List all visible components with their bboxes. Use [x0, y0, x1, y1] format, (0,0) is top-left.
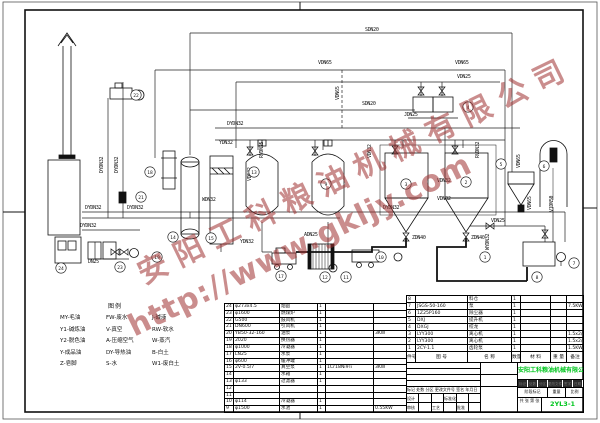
table-cell: 5	[407, 316, 416, 323]
pipe-label-ADN25: ADN25	[304, 232, 318, 238]
table-cell: 1	[512, 302, 521, 309]
table-cell	[374, 317, 407, 324]
table-cell: JSGS-50-160	[416, 302, 468, 309]
table-cell: 1	[318, 303, 326, 310]
table-cell: 17	[225, 351, 234, 358]
equipment-tag: 9	[325, 182, 328, 188]
equipment-tag: 13	[251, 170, 257, 176]
legend-column: FW-废水V-真空A-压缩空气DY-导热油S-水	[106, 313, 152, 371]
table-cell: 1.5x2/4KW	[567, 337, 584, 344]
pipe-label-RVDN32: RVDN32	[475, 141, 481, 158]
valves	[111, 87, 548, 255]
table-cell: DN600	[234, 323, 280, 330]
pipe-label-VDN32: VDN32	[367, 144, 373, 158]
table-cell	[551, 337, 567, 344]
table-cell: 11	[225, 392, 234, 399]
table-cell	[551, 302, 567, 309]
table-cell: G500	[234, 317, 280, 324]
table-cell	[551, 316, 567, 323]
table-cell: 1	[318, 398, 326, 405]
table-cell	[374, 310, 407, 317]
table-row: 192020换热器1	[225, 337, 407, 344]
table-cell	[280, 385, 318, 392]
table-cell: 齿轮泵	[468, 344, 512, 351]
equipment-tag: 12	[322, 275, 328, 281]
table-cell	[374, 371, 407, 378]
pipe-label-VDN65: VDN65	[516, 154, 522, 168]
pipe-label-ZDN40: ZDN40	[412, 235, 426, 241]
table-cell	[318, 392, 326, 399]
legend-item: W-蒸汽	[152, 336, 198, 348]
table-cell: 1	[318, 358, 326, 365]
table-cell: 1	[318, 323, 326, 330]
table-cell	[374, 358, 407, 365]
equipment-tag: 4	[467, 105, 470, 111]
pipe-label-DYDN32: DYDN32	[227, 121, 244, 127]
table-cell: φ114	[234, 398, 280, 405]
table-cell: 图 号	[416, 351, 468, 362]
table-cell: 1	[318, 378, 326, 385]
table-cell	[551, 344, 567, 351]
table-cell	[521, 330, 551, 337]
table-cell: 2	[407, 337, 416, 344]
table-cell: 3KW	[374, 364, 407, 371]
table-cell: 引风机	[280, 323, 318, 330]
table-row: 22G500鼓风机1	[225, 317, 407, 324]
table-cell	[374, 344, 407, 351]
table-cell: 1	[318, 337, 326, 344]
legend-item: DY-导热油	[106, 348, 152, 360]
table-cell: 1	[512, 316, 521, 323]
bom-table-left: 24φ273x4.5烟囱123φ1600燃煤炉122G500鼓风机121DN60…	[224, 303, 407, 413]
table-cell: φ1000	[234, 344, 280, 351]
revision-cell: 更改文件号	[548, 380, 563, 388]
legend-item: Y1-碱炼油	[60, 325, 106, 337]
pipe-label-WYDN32: WYDN32	[485, 233, 491, 250]
table-cell: 件号	[407, 351, 416, 362]
table-row: 2LYY300离心机11.5x2/4KW	[407, 337, 584, 344]
legend-item: S-水	[106, 359, 152, 371]
pipe-label-VDN25: VDN25	[491, 218, 505, 224]
blower	[110, 88, 132, 99]
legend-column: MY-毛油Y1-碱炼油Y2-脱色油Y-成品油Z-皂脚	[60, 313, 106, 371]
table-cell: 1	[512, 344, 521, 351]
table-cell	[326, 405, 374, 412]
table-row: 18φ1000冷凝器1	[225, 344, 407, 351]
table-cell: 冷凝器	[280, 398, 318, 405]
table-cell: 23	[225, 310, 234, 317]
table-cell	[567, 295, 584, 302]
table-cell	[234, 385, 280, 392]
table-cell: 1.5x2/4KW	[567, 330, 584, 337]
table-cell	[326, 371, 374, 378]
title-block: 标记 处数 分区 更改文件号 签名 年月日 设计 标准化 审核 工艺 批准 工艺…	[406, 362, 583, 412]
equipment-tag: 15	[208, 236, 214, 242]
table-cell: YB50-32-160	[234, 330, 280, 337]
revision-dark-row: 标记处数分区更改文件号签字日期	[518, 380, 583, 388]
pipe-label-VDN32: VDN32	[437, 196, 451, 202]
table-cell: 材 料	[521, 351, 551, 362]
table-cell	[551, 330, 567, 337]
table-cell: 备注	[567, 351, 584, 362]
table-cell	[326, 337, 374, 344]
table-cell	[374, 323, 407, 330]
pipe-label-ZDN40: ZDN40	[471, 235, 485, 241]
equipment-tag: 6	[543, 164, 546, 170]
sign-row-1: 设计 标准化	[407, 394, 481, 403]
table-cell	[318, 385, 326, 392]
pipe-label-VDN65: VDN65	[527, 196, 533, 210]
table-cell: 1	[407, 344, 416, 351]
legend-item: RW-软水	[152, 325, 198, 337]
sign-cell: 批准	[457, 403, 469, 413]
table-cell: 水泵	[280, 351, 318, 358]
pipe-label-VDN65: VDN65	[318, 60, 332, 66]
table-cell: 9	[225, 405, 234, 412]
table-cell	[416, 295, 468, 302]
table-row: 8料仓1	[407, 295, 584, 302]
table-cell: 1.5KW	[567, 344, 584, 351]
table-cell: 1	[512, 309, 521, 316]
table-cell: 16	[225, 358, 234, 365]
legend-item: W1-废白土	[152, 359, 198, 371]
table-cell: 离心机	[468, 337, 512, 344]
table-row: 12CY-1.1齿轮泵11.5KW	[407, 344, 584, 351]
drawing-title: 工艺流程图	[481, 387, 518, 413]
drawing-sheet: SDN20VDN65VDN65VDN25VDN65SDN20JDN25DYDN3…	[0, 0, 600, 423]
table-cell: 冷凝器	[280, 344, 318, 351]
table-cell: 1Z25P160	[416, 309, 468, 316]
table-cell: 绞龙	[468, 323, 512, 330]
table-cell	[374, 337, 407, 344]
pipe-label-VDN32: VDN32	[437, 178, 451, 184]
table-row: 16φ600缓冲罐1	[225, 358, 407, 365]
furnace	[48, 160, 80, 235]
table-cell	[521, 302, 551, 309]
table-cell: 2020	[234, 337, 280, 344]
table-row: 13φ133过滤器1	[225, 378, 407, 385]
table-cell: 3KW	[374, 330, 407, 337]
table-row: 21DN600引风机1	[225, 323, 407, 330]
legend-item: V-真空	[106, 325, 152, 337]
revision-cell: 处数	[528, 380, 538, 388]
table-cell: φ273x4.5	[234, 303, 280, 310]
table-row: 61Z25P160除尘器1	[407, 309, 584, 316]
table-cell	[551, 309, 567, 316]
pipe-label-DYDN32: DYDN32	[80, 223, 97, 229]
cone-tank	[445, 153, 488, 198]
pipe-label-DYDN32: DYDN32	[127, 205, 144, 211]
table-row: 3LYY300离心机11.5x2/4KW	[407, 330, 584, 337]
table-cell: 1	[512, 323, 521, 330]
equipment-tag: 19	[154, 255, 160, 261]
pump	[394, 253, 402, 261]
pipe-label-DYDN32: DYDN32	[99, 156, 105, 173]
sign-cell: 工艺	[432, 403, 444, 413]
equipment-tag: 18	[147, 170, 153, 176]
table-cell: 提升机	[468, 316, 512, 323]
company-name: 安阳工科粮油机械有限公司	[518, 363, 584, 380]
sheet-note: 共 张 第 张	[518, 397, 542, 413]
table-row: 10φ114冷凝器1	[225, 398, 407, 405]
table-cell: 15	[225, 364, 234, 371]
bom-table-right: 8料仓17JSGS-50-160泵17.5KW61Z25P160除尘器15DXJ…	[406, 295, 584, 352]
equipment-tag: 22	[133, 93, 139, 99]
table-cell: 真空泵	[280, 364, 318, 371]
table-cell	[280, 392, 318, 399]
table-cell	[521, 316, 551, 323]
table-cell: 13	[225, 378, 234, 385]
table-cell: 3	[407, 330, 416, 337]
sign-cell: 审核	[407, 403, 419, 413]
equipment-tag: 8	[536, 275, 539, 281]
table-cell	[234, 371, 280, 378]
table-cell	[521, 337, 551, 344]
table-cell: 0.55KW	[374, 405, 407, 412]
equipment-tag: 3	[405, 182, 408, 188]
legend-columns: MY-毛油Y1-碱炼油Y2-脱色油Y-成品油Z-皂脚FW-废水V-真空A-压缩空…	[60, 313, 220, 371]
table-cell	[326, 398, 374, 405]
legend-item: J-碱液	[152, 313, 198, 325]
legend-title: 图例	[108, 301, 220, 310]
cone-tank	[385, 153, 428, 198]
revision-cell: 日期	[573, 380, 583, 388]
table-cell: 料仓	[468, 295, 512, 302]
table-cell	[326, 323, 374, 330]
table-cell	[326, 385, 374, 392]
table-row: 7JSGS-50-160泵17.5KW	[407, 302, 584, 309]
table-cell: 烟囱	[280, 303, 318, 310]
piping	[82, 33, 565, 266]
table-cell: 14	[225, 371, 234, 378]
table-cell	[567, 323, 584, 330]
table-cell: DXJ	[416, 316, 468, 323]
table-cell: 1	[512, 295, 521, 302]
vacuum-pump	[413, 97, 433, 112]
pipe-label-VDN65: VDN65	[335, 86, 341, 100]
pump	[130, 249, 139, 258]
table-cell	[374, 303, 407, 310]
table-cell	[326, 358, 374, 365]
table-row: 11	[225, 392, 407, 399]
table-cell: 离心机	[468, 330, 512, 337]
legend-item: B-白土	[152, 348, 198, 360]
table-row: 17LN25水泵1	[225, 351, 407, 358]
table-cell: 1	[318, 317, 326, 324]
table-cell: 1	[318, 405, 326, 412]
table-cell: 1	[318, 351, 326, 358]
table-cell: 过滤器	[280, 378, 318, 385]
table-cell: 2V-0.5/7	[234, 364, 280, 371]
table-cell: 7	[407, 302, 416, 309]
table-row: 23φ1600燃煤炉1	[225, 310, 407, 317]
table-row: 14水箱1	[225, 371, 407, 378]
table-cell	[521, 323, 551, 330]
pipe-label-DYDN32: DYDN32	[114, 156, 120, 173]
table-cell: 8	[407, 295, 416, 302]
table-cell: 换热器	[280, 337, 318, 344]
equipment-tag: 10	[378, 255, 384, 261]
table-cell	[326, 344, 374, 351]
pipe-label-WDN32: WDN32	[202, 197, 216, 203]
equipment-tag: 2	[465, 180, 468, 186]
sign-cell: 标准化	[444, 394, 457, 403]
table-cell	[374, 398, 407, 405]
table-cell	[374, 385, 407, 392]
table-cell: 重 量	[551, 351, 567, 362]
table-cell	[234, 392, 280, 399]
table-cell: 燃煤炉	[280, 310, 318, 317]
pipe-label-RVDN25: RVDN25	[259, 141, 265, 158]
table-cell: 18	[225, 344, 234, 351]
pipe-label-VDN65: VDN65	[455, 60, 469, 66]
table-cell	[521, 309, 551, 316]
table-cell	[521, 344, 551, 351]
sign-cell: 设计	[407, 394, 419, 403]
table-cell	[326, 392, 374, 399]
table-cell: 数量	[512, 351, 521, 362]
table-cell: 21	[225, 323, 234, 330]
table-cell	[567, 316, 584, 323]
equipment-tag: 1	[484, 255, 487, 261]
table-row: 5DXJ提升机1	[407, 316, 584, 323]
table-cell: 6	[407, 309, 416, 316]
column-small	[163, 151, 175, 189]
table-cell: 缓冲罐	[280, 358, 318, 365]
table-cell: 1	[318, 310, 326, 317]
table-cell: 1	[512, 337, 521, 344]
equipment-tag: 5	[500, 162, 503, 168]
legend-column: J-碱液RW-软水W-蒸汽B-白土W1-废白土	[152, 313, 198, 371]
table-cell: 19	[225, 337, 234, 344]
filter-press	[310, 244, 333, 269]
table-cell	[374, 392, 407, 399]
revision-cell: 标记	[518, 380, 528, 388]
legend-item: Z-皂脚	[60, 359, 106, 371]
pipe-labels: SDN20VDN65VDN65VDN25VDN65SDN20JDN25DYDN3…	[80, 27, 555, 265]
legend-item: FW-废水	[106, 313, 152, 325]
equipment-tag: 17	[278, 274, 284, 280]
pipe-label-SDN20: SDN20	[362, 101, 376, 107]
table-cell: φ1500	[234, 405, 280, 412]
table-cell: 鼓风机	[280, 317, 318, 324]
pipe-label-DN25: DN25	[88, 259, 99, 265]
reactor	[246, 154, 278, 215]
equipment-tag: 11	[343, 275, 349, 281]
table-cell: DXGJ	[416, 323, 468, 330]
table-cell: 水箱	[280, 371, 318, 378]
table-cell: 名 称	[468, 351, 512, 362]
table-cell: 20	[225, 330, 234, 337]
equipment-tag: 21	[138, 195, 144, 201]
table-cell	[326, 310, 374, 317]
table-cell	[326, 378, 374, 385]
legend-item: MY-毛油	[60, 313, 106, 325]
pipe-label-VDN25: VDN25	[457, 74, 471, 80]
drawing-number: 2YL3-1	[542, 397, 584, 413]
table-cell: 泵	[468, 302, 512, 309]
table-cell: φ600	[234, 358, 280, 365]
table-cell: 24	[225, 303, 234, 310]
table-cell: 除尘器	[468, 309, 512, 316]
pipe-label-DYDN32: DYDN32	[85, 205, 102, 211]
table-cell	[374, 351, 407, 358]
table-cell: LYY300	[416, 337, 468, 344]
table-cell	[551, 323, 567, 330]
pipe-label-YDN32: YDN32	[240, 239, 254, 245]
table-cell: 1	[512, 330, 521, 337]
table-row: 件号图 号名 称数量材 料重 量备注	[407, 351, 584, 362]
vessel	[181, 162, 199, 234]
table-cell: 油泵	[280, 330, 318, 337]
table-cell: 2CY-1.1	[416, 344, 468, 351]
pipe-label-SDN20: SDN20	[365, 27, 379, 33]
table-cell	[326, 351, 374, 358]
vacuum-pump	[433, 97, 453, 112]
table-cell: φ1600	[234, 310, 280, 317]
table-cell	[551, 295, 567, 302]
table-cell: 1	[318, 364, 326, 371]
chimney	[58, 33, 76, 155]
table-cell: 22	[225, 317, 234, 324]
table-cell: 1	[318, 344, 326, 351]
table-row: 4DXGJ绞龙1	[407, 323, 584, 330]
table-cell	[521, 295, 551, 302]
table-cell	[326, 317, 374, 324]
equipment-tag: 23	[117, 265, 123, 271]
equipment-tags: 22182113932456141519232417121110187	[56, 90, 579, 282]
table-cell: φ133	[234, 378, 280, 385]
table-cell: 1	[318, 330, 326, 337]
pipe-label-DYDN32: DYDN32	[383, 205, 400, 211]
seal-tank	[523, 242, 555, 266]
table-cell	[326, 303, 374, 310]
table-cell	[567, 309, 584, 316]
table-cell: 1Cr18Ni9Ti	[326, 364, 374, 371]
pump	[557, 253, 566, 262]
sign-row-2: 审核 工艺 批准	[407, 403, 481, 413]
legend-item: Y-成品油	[60, 348, 106, 360]
legend: 图例 MY-毛油Y1-碱炼油Y2-脱色油Y-成品油Z-皂脚FW-废水V-真空A-…	[60, 301, 220, 371]
table-cell: 12	[225, 385, 234, 392]
table-row: 24φ273x4.5烟囱1	[225, 303, 407, 310]
table-cell: 7.5KW	[567, 302, 584, 309]
table-cell: 1	[318, 371, 326, 378]
equipment-tag: 24	[58, 266, 64, 272]
cart	[272, 253, 296, 264]
table-row: 12	[225, 385, 407, 392]
revision-cell: 分区	[538, 380, 548, 388]
pipe-label-V1DN50: V1DN50	[549, 195, 555, 212]
pipe-label-JDN25: JDN25	[404, 112, 418, 118]
cyclone	[508, 172, 534, 184]
table-cell: 10	[225, 398, 234, 405]
equipment-tag: 14	[170, 235, 176, 241]
table-cell	[326, 330, 374, 337]
table-row: 9φ1500水池10.55KW	[225, 405, 407, 412]
revision-cell: 签字	[563, 380, 573, 388]
legend-item: A-压缩空气	[106, 336, 152, 348]
table-row: 20YB50-32-160油泵13KW	[225, 330, 407, 337]
table-cell: LN25	[234, 351, 280, 358]
table-row: 152V-0.5/7真空泵11Cr18Ni9Ti3KW	[225, 364, 407, 371]
pipe-label-YDN32: YDN32	[219, 140, 233, 146]
table-cell	[374, 378, 407, 385]
table-cell: 水池	[280, 405, 318, 412]
table-cell: LYY300	[416, 330, 468, 337]
equipment-tag: 7	[573, 261, 576, 267]
table-cell: 4	[407, 323, 416, 330]
